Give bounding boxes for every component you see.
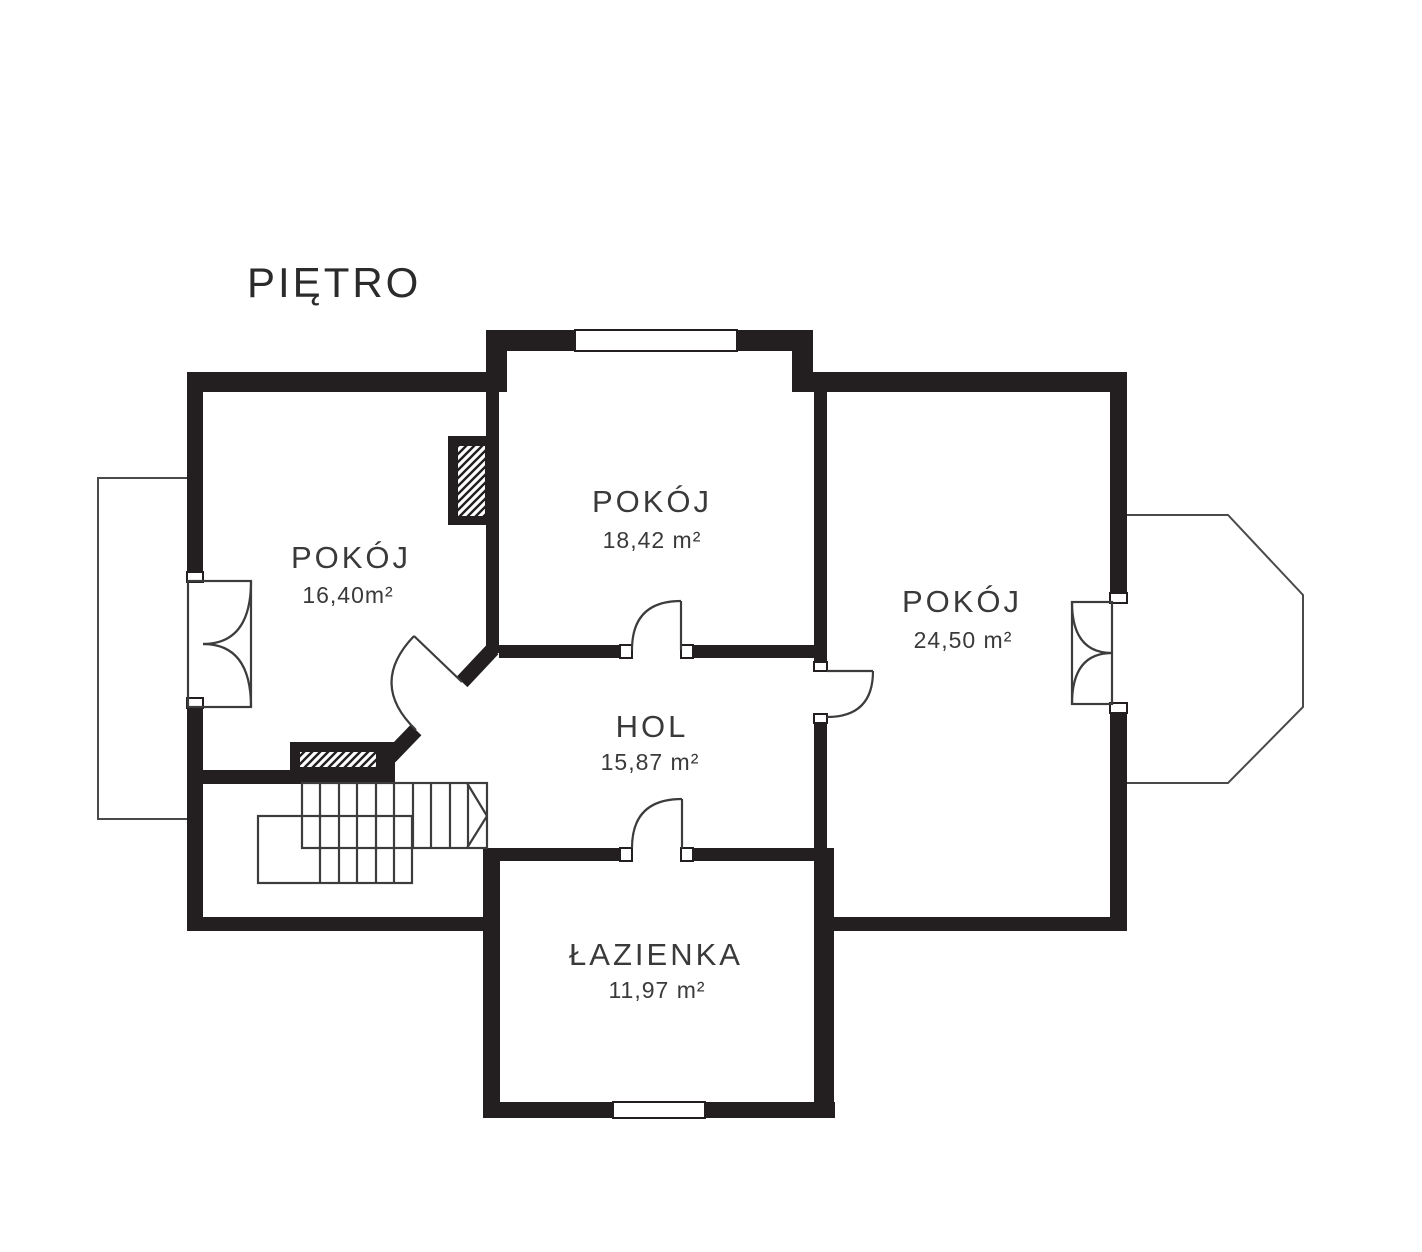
floor-plan-page: PIĘTRO POKÓJ 16,40m² POKÓJ 18,42 m² POKÓ… — [0, 0, 1422, 1252]
room-name: HOL — [616, 709, 689, 744]
window-bathroom — [613, 1102, 705, 1118]
page-title: PIĘTRO — [247, 259, 421, 306]
room-area: 11,97 m² — [608, 977, 705, 1003]
label-room-left: POKÓJ 16,40m² — [291, 540, 411, 608]
room-name: POKÓJ — [592, 484, 712, 519]
door-left-room — [391, 636, 462, 730]
floor-plan-drawing: PIĘTRO POKÓJ 16,40m² POKÓJ 18,42 m² POKÓ… — [0, 0, 1422, 1252]
room-area: 15,87 m² — [601, 749, 700, 775]
room-area: 16,40m² — [302, 582, 393, 608]
window-top — [575, 330, 737, 351]
staircase — [258, 783, 487, 883]
stair-direction-arrow — [467, 783, 487, 816]
interior-walls — [187, 392, 835, 1118]
chimney-upper — [448, 436, 499, 525]
door-bathroom — [620, 799, 693, 861]
door-right-room — [814, 662, 873, 723]
bay-outline-right — [1127, 515, 1303, 783]
door-top-room — [620, 601, 693, 658]
chimney-lower — [290, 742, 395, 784]
room-area: 18,42 m² — [603, 527, 702, 553]
label-room-top: POKÓJ 18,42 m² — [592, 484, 712, 553]
room-name: ŁAZIENKA — [569, 937, 743, 972]
label-room-right: POKÓJ 24,50 m² — [902, 584, 1022, 653]
room-area: 24,50 m² — [914, 627, 1013, 653]
room-name: POKÓJ — [291, 540, 411, 575]
french-door-left — [187, 572, 251, 708]
porch-outline-left — [98, 478, 187, 819]
french-door-right — [1072, 593, 1127, 713]
room-name: POKÓJ — [902, 584, 1022, 619]
label-hall: HOL 15,87 m² — [601, 709, 700, 775]
label-bathroom: ŁAZIENKA 11,97 m² — [569, 937, 743, 1003]
